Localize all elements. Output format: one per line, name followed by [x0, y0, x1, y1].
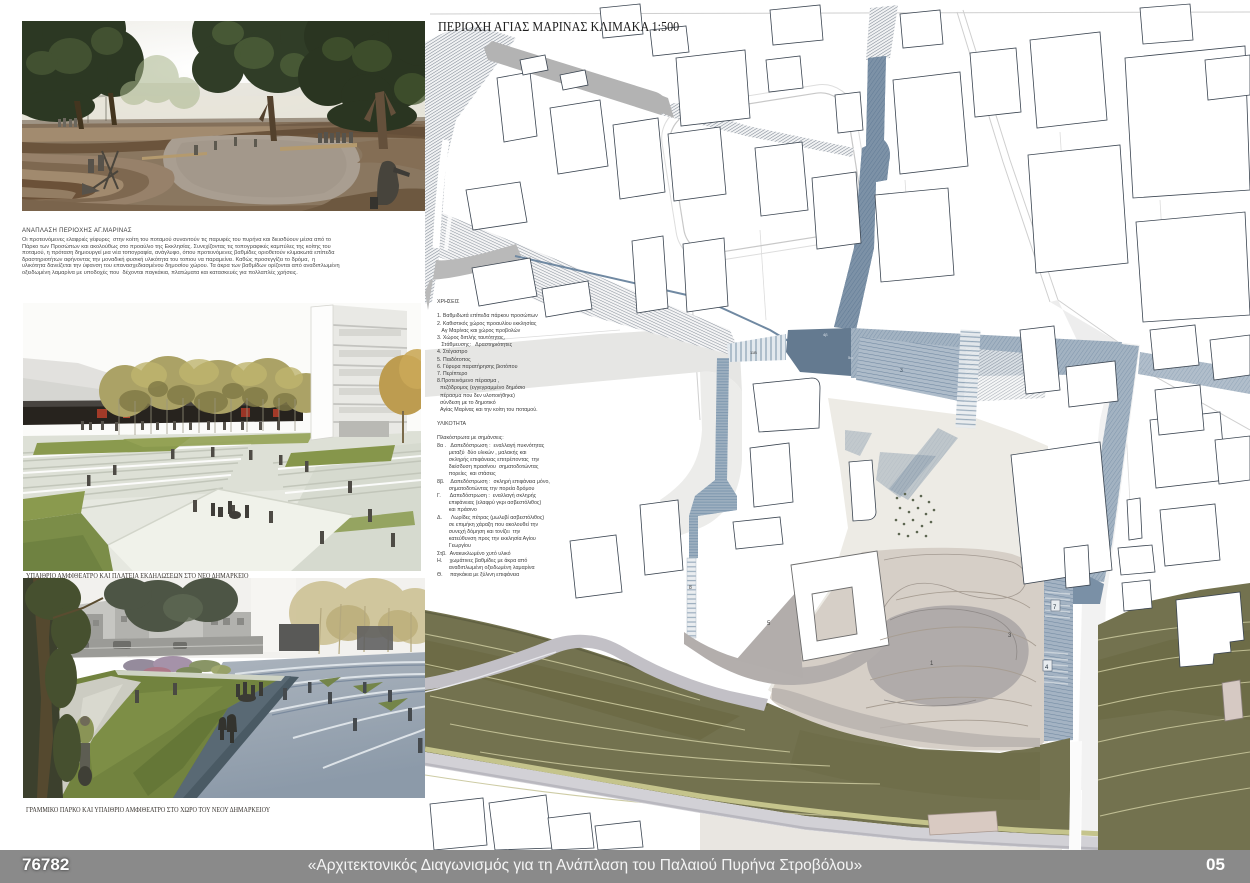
svg-text:5α: 5α: [848, 355, 853, 360]
svg-text:3: 3: [900, 368, 903, 374]
svg-text:11B: 11B: [750, 350, 757, 355]
svg-text:4β: 4β: [823, 332, 828, 337]
svg-text:8: 8: [689, 585, 692, 591]
